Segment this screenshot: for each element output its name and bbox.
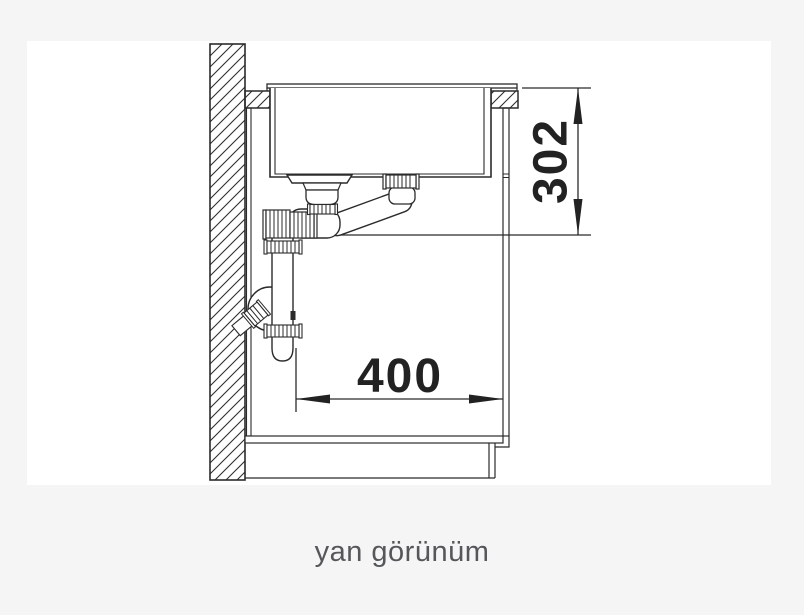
dim-302-label: 302 bbox=[525, 118, 578, 204]
drawing-card: 302 400 bbox=[27, 41, 771, 485]
drain-flange bbox=[287, 175, 352, 183]
dim-400-arrow-left bbox=[296, 395, 330, 404]
wall-hatch bbox=[210, 44, 245, 480]
pipe-clip bbox=[291, 311, 296, 320]
dim-400-arrow-right bbox=[469, 395, 503, 404]
cabinet-side-panel bbox=[503, 108, 509, 436]
cabinet-back-panel bbox=[247, 108, 252, 436]
countertop-right bbox=[491, 91, 518, 108]
dim-400-label: 400 bbox=[357, 350, 443, 403]
drain-plumbing bbox=[230, 174, 419, 361]
sink-basin bbox=[270, 88, 491, 177]
dimension-400: 400 bbox=[296, 348, 503, 412]
page-background: 302 400 bbox=[0, 0, 804, 615]
coupling-nut-lower bbox=[264, 324, 302, 338]
drain-collar bbox=[308, 204, 338, 215]
cabinet-bottom-panel bbox=[245, 436, 503, 443]
strainer-cup bbox=[306, 190, 338, 205]
plinth bbox=[245, 443, 495, 478]
strainer-basket bbox=[303, 183, 341, 190]
sink-rim bbox=[267, 84, 517, 88]
view-caption: yan görünüm bbox=[0, 536, 804, 569]
overflow-fitting bbox=[383, 174, 419, 189]
countertop-left bbox=[245, 91, 270, 108]
overflow-elbow bbox=[389, 187, 415, 204]
tailpipe bbox=[272, 237, 293, 361]
coupling-nut-upper bbox=[264, 240, 302, 254]
side-view-technical-drawing: 302 400 bbox=[27, 41, 771, 485]
